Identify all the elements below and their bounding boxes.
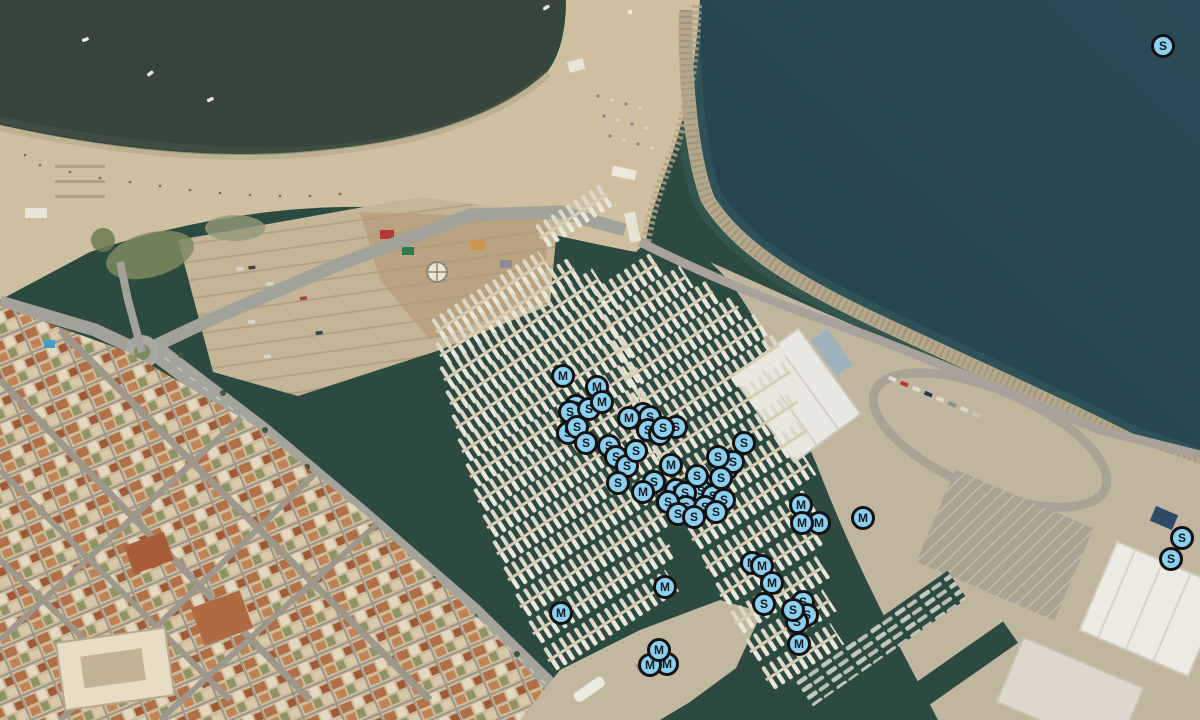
map-marker-m[interactable]: M [549, 601, 573, 625]
map-marker-m[interactable]: M [631, 480, 655, 504]
map-marker-s[interactable]: S [606, 471, 630, 495]
map-marker-s[interactable]: S [1159, 547, 1183, 571]
map-marker-s[interactable]: S [709, 466, 733, 490]
map-marker-s[interactable]: S [624, 439, 648, 463]
map-marker-s[interactable]: S [704, 500, 728, 524]
map-marker-m[interactable]: M [647, 638, 671, 662]
map-marker-s[interactable]: S [732, 431, 756, 455]
map-canvas[interactable]: SSSMMSSSMSSMSSSSSSSSSSMSSSSSSSSSSSSSMSSS… [0, 0, 1200, 720]
map-marker-m[interactable]: M [787, 632, 811, 656]
map-marker-s[interactable]: S [752, 592, 776, 616]
map-marker-m[interactable]: M [659, 453, 683, 477]
map-marker-s[interactable]: S [1170, 526, 1194, 550]
map-marker-s[interactable]: S [682, 505, 706, 529]
map-marker-s[interactable]: S [685, 464, 709, 488]
map-marker-s[interactable]: S [1151, 34, 1175, 58]
map-marker-m[interactable]: M [851, 506, 875, 530]
map-marker-m[interactable]: M [790, 511, 814, 535]
map-marker-s[interactable]: S [574, 431, 598, 455]
map-marker-m[interactable]: M [653, 575, 677, 599]
map-marker-m[interactable]: M [551, 364, 575, 388]
map-marker-s[interactable]: S [651, 416, 675, 440]
markers-layer: SSSMMSSSMSSMSSSSSSSSSSMSSSSSSSSSSSSSMSSS… [0, 0, 1200, 720]
map-marker-s[interactable]: S [781, 598, 805, 622]
map-marker-m[interactable]: M [590, 390, 614, 414]
